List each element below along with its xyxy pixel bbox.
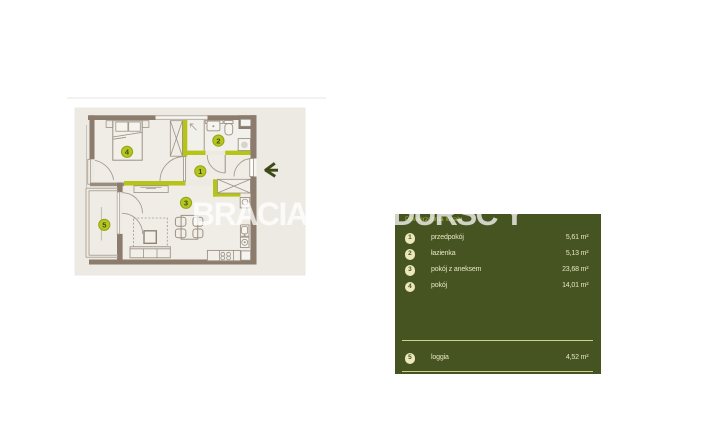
svg-text:1: 1 — [198, 167, 202, 176]
svg-text:3: 3 — [184, 199, 188, 208]
svg-text:2: 2 — [216, 136, 220, 145]
svg-text:5: 5 — [102, 221, 106, 230]
